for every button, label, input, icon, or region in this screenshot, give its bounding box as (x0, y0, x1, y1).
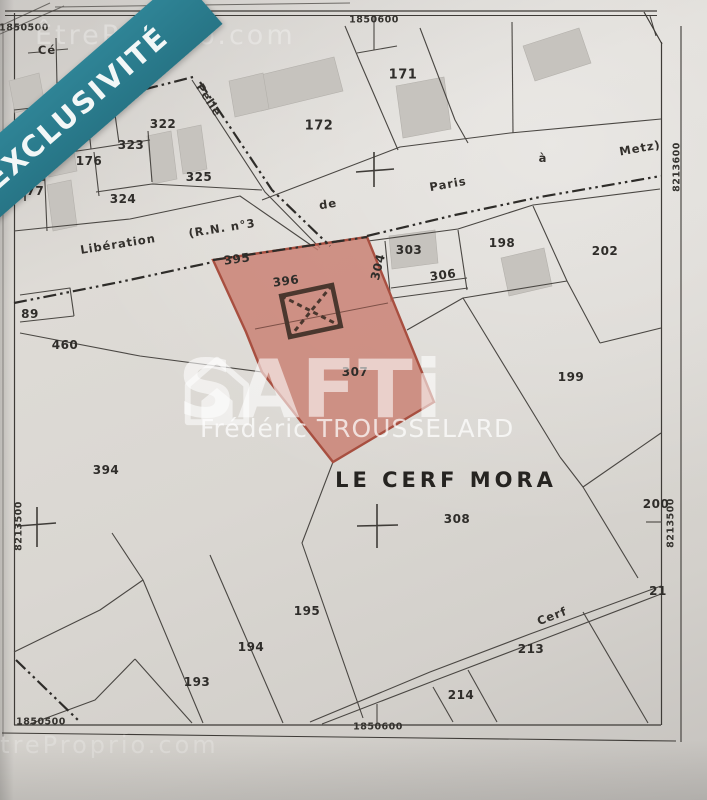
parcel-number-label: 193 (184, 675, 211, 689)
parcel-number-label: 303 (396, 243, 423, 257)
parcel-number-label: 460 (52, 338, 79, 352)
grid-coordinate-label: 1850600 (349, 15, 399, 26)
parcel-number-label: 176 (76, 154, 103, 168)
parcel-number-label: 214 (448, 688, 475, 702)
parcel-number-label: 213 (518, 642, 545, 656)
parcel-number-label: 396 (272, 272, 300, 290)
street-name-label: Pelle (193, 81, 225, 120)
parcel-number-label: 199 (558, 370, 585, 384)
parcel-number-label: 172 (305, 119, 334, 134)
parcel-number-label: 325 (186, 170, 213, 184)
agent-name: Frédéric TROUSSELARD (200, 414, 500, 443)
street-name-label: (R.N. n°3 (188, 216, 257, 240)
lieu-dit-label: LE CERF MORA (335, 468, 557, 492)
grid-coordinate-label: 1850500 (16, 717, 66, 728)
parcel-number-label: 194 (238, 640, 265, 654)
parcel-number-label: 202 (592, 244, 619, 258)
parcel-number-label: 21 (649, 584, 667, 598)
street-name-label: de (318, 196, 338, 213)
parcel-number-label: 304 (368, 252, 388, 281)
parcel-number-label: 195 (294, 604, 321, 618)
street-name-label: Cerf (535, 604, 569, 628)
grid-coordinate-label: 8213500 (14, 501, 25, 551)
street-name-label: Libération (79, 231, 157, 257)
grid-coordinate-label: 8213600 (672, 142, 683, 192)
street-name-label: à (539, 151, 548, 165)
grid-coordinate-label: 1850600 (353, 722, 403, 733)
street-name-label: Metz) (618, 137, 662, 158)
site-watermark-bottom: ÊtreProprio.com (0, 731, 219, 759)
grid-coordinate-label: 8213500 (666, 498, 677, 548)
parcel-number-label: 322 (150, 117, 177, 131)
cadastral-map-photo: 1771763223233243251721713953963043033061… (0, 0, 707, 800)
parcel-number-label: 323 (118, 138, 145, 152)
parcel-number-label: 198 (489, 236, 516, 250)
parcel-number-label: 171 (389, 68, 418, 83)
parcel-number-label: 394 (93, 463, 120, 477)
parcel-number-label: 395 (223, 250, 251, 268)
parcel-number-label: 89 (21, 307, 39, 321)
street-name-label: Paris (428, 174, 467, 194)
parcel-number-label: 308 (444, 512, 471, 526)
parcel-number-label: 306 (429, 266, 457, 284)
parcel-number-label: 324 (110, 192, 137, 206)
